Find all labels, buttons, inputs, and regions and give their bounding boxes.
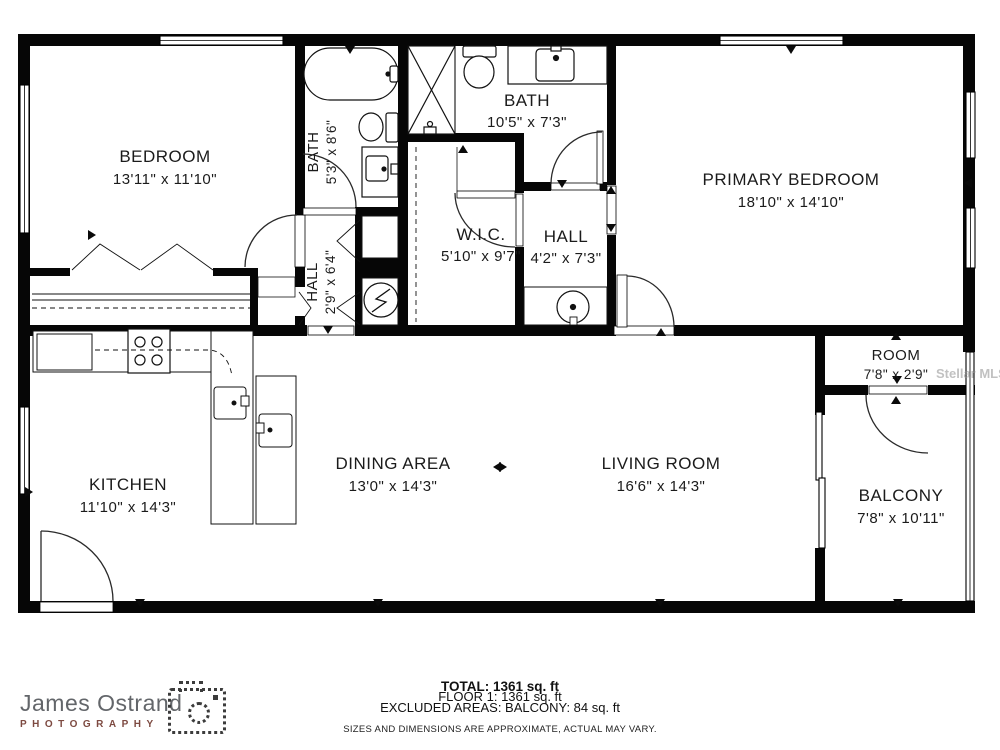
disclaimer-text: SIZES AND DIMENSIONS ARE APPROXIMATE, AC… (0, 724, 1000, 735)
counter (256, 376, 296, 524)
shower-icon (408, 46, 455, 134)
kitchen-sink-icon (256, 414, 292, 447)
label-hall2-dims: 2'9" x 6'4" (323, 250, 338, 315)
label-primary-bedroom-dims: 18'10" x 14'10" (738, 194, 844, 211)
washer-icon (524, 287, 607, 325)
label-hall1-name: HALL (544, 227, 589, 246)
toilet-icon (359, 113, 398, 142)
counter (211, 331, 253, 524)
mls-watermark: Stellar MLS (936, 366, 1000, 381)
bifold-door-icon (72, 244, 140, 270)
kitchen-sink-icon (214, 387, 249, 419)
stove-icon (128, 329, 170, 373)
label-kitchen-dims: 11'10" x 14'3" (80, 499, 177, 516)
label-bath1-name: BATH (305, 132, 322, 173)
label-kitchen-name: KITCHEN (89, 475, 167, 494)
excluded-area: EXCLUDED AREAS: BALCONY: 84 sq. ft (0, 703, 1000, 714)
label-room-dims: 7'8" x 2'9" (864, 367, 929, 382)
label-dining-name: DINING AREA (335, 454, 450, 473)
area-summary: TOTAL: 1361 sq. ft FLOOR 1: 1361 sq. ft … (0, 681, 1000, 713)
floor-plan-canvas: BEDROOM 13'11" x 11'10" BATH 5'3" x 8'6"… (0, 0, 1000, 645)
label-balcony-dims: 7'8" x 10'11" (857, 510, 945, 527)
label-bedroom-name: BEDROOM (119, 147, 210, 166)
label-primary-bedroom-name: PRIMARY BEDROOM (703, 170, 880, 189)
sink-vanity-icon (508, 46, 607, 84)
label-wic-name: W.I.C. (456, 225, 505, 244)
label-hall1-dims: 4'2" x 7'3" (530, 250, 601, 267)
label-hall2-name: HALL (304, 262, 321, 302)
label-bath1-dims: 5'3" x 8'6" (324, 120, 339, 185)
label-bedroom-dims: 13'11" x 11'10" (113, 171, 217, 188)
toilet-icon (463, 46, 496, 88)
bifold-door-icon (141, 244, 213, 270)
label-living-dims: 16'6" x 14'3" (617, 478, 706, 495)
label-bath2-dims: 10'5" x 7'3" (487, 114, 567, 131)
bathtub-icon (304, 48, 398, 100)
sink-vanity-icon (362, 147, 398, 197)
label-bath2-name: BATH (504, 91, 550, 110)
label-dining-dims: 13'0" x 14'3" (349, 478, 438, 495)
fridge-icon (37, 334, 92, 370)
label-wic-dims: 5'10" x 9'7" (441, 248, 521, 265)
label-living-name: LIVING ROOM (602, 454, 721, 473)
floorplan-image: BEDROOM 13'11" x 11'10" BATH 5'3" x 8'6"… (0, 0, 1000, 750)
label-room-name: ROOM (872, 347, 921, 364)
room-labels: BEDROOM 13'11" x 11'10" BATH 5'3" x 8'6"… (80, 91, 945, 527)
label-balcony-name: BALCONY (859, 486, 944, 505)
kitchen-fixtures (33, 329, 296, 524)
